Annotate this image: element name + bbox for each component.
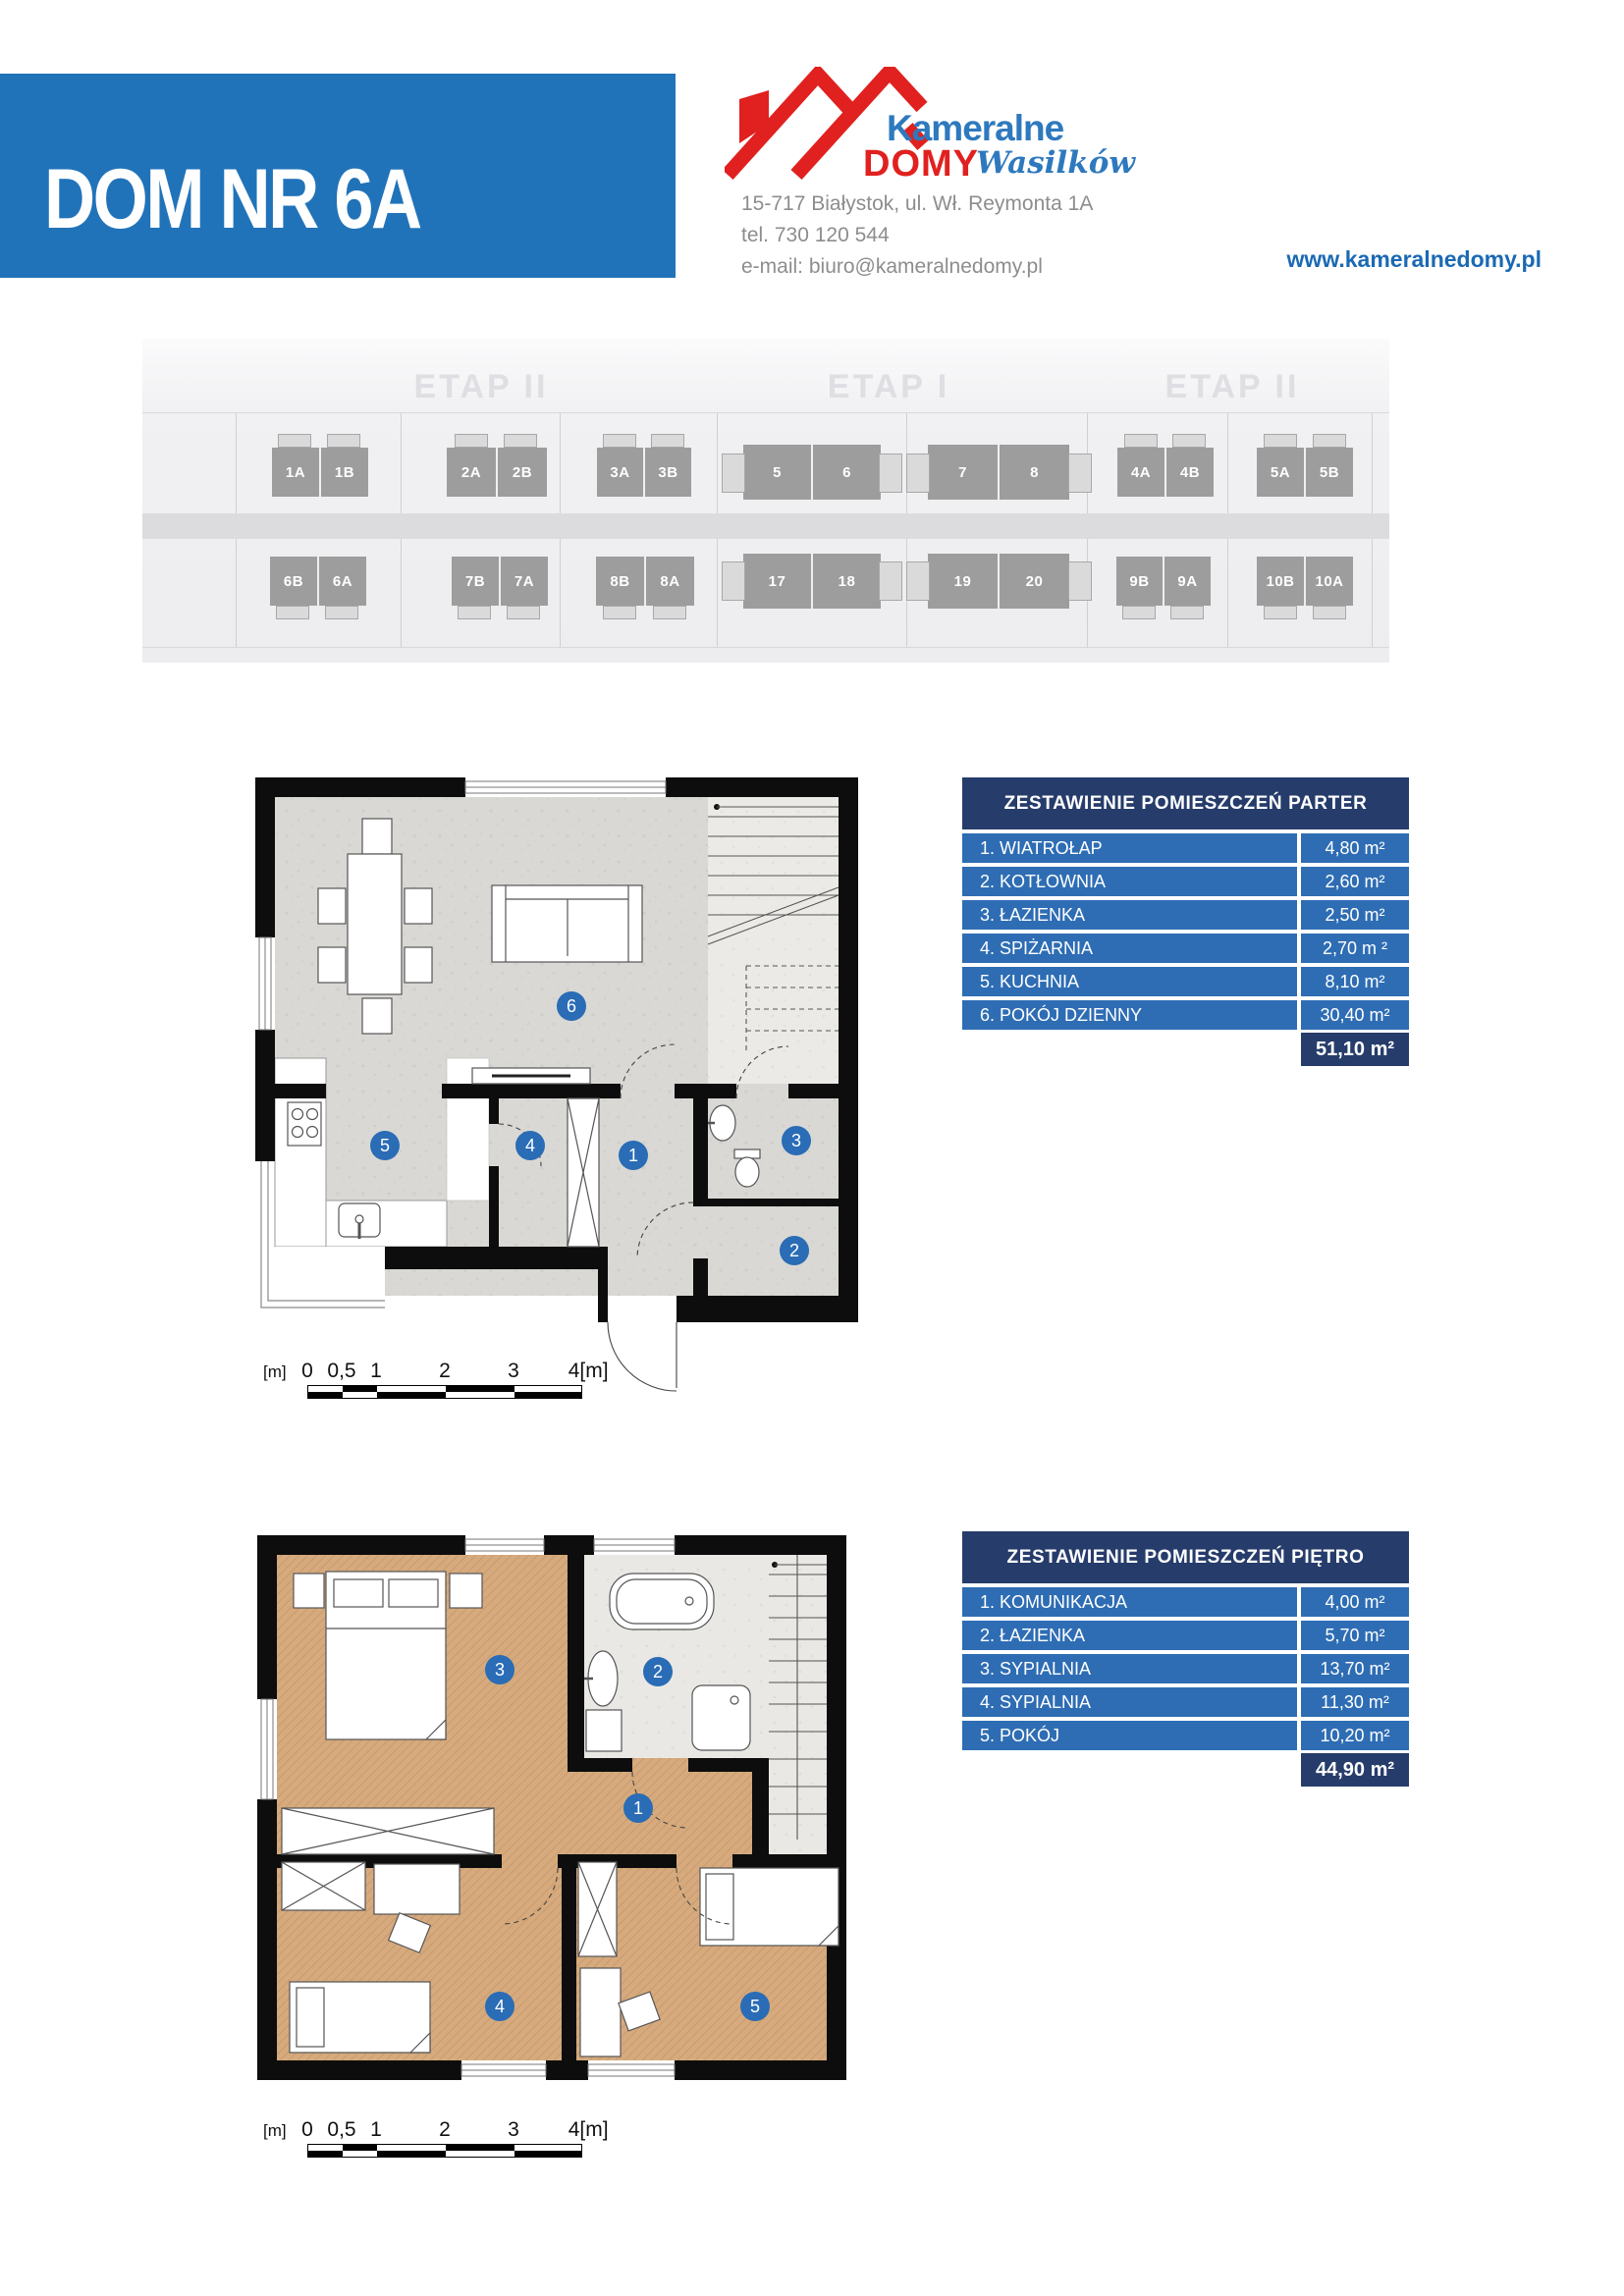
- table-pietro: ZESTAWIENIE POMIESZCZEŃ PIĘTRO 1. KOMUNI…: [962, 1531, 1409, 1787]
- house-pair-7B-7A: 7B 7A: [452, 557, 548, 606]
- contact-address: 15-717 Białystok, ul. Wł. Reymonta 1A: [741, 188, 1093, 220]
- house-pair-3A-3B: 3A 3B: [597, 448, 691, 497]
- scale-bar-parter: [m] 0 0,5 1 2 3 4[m]: [263, 1360, 617, 1409]
- bathtub: [610, 1574, 714, 1629]
- house-pair-1A-1B: 1A 1B: [272, 448, 368, 497]
- table-parter-total: 51,10 m²: [1301, 1033, 1409, 1066]
- table-row: 3. ŁAZIENKA2,50 m²: [962, 900, 1409, 930]
- table-row: 5. KUCHNIA8,10 m²: [962, 967, 1409, 996]
- table-parter: ZESTAWIENIE POMIESZCZEŃ PARTER 1. WIATRO…: [962, 777, 1409, 1066]
- stage-label-etap2-right: ETAP II: [1165, 368, 1300, 406]
- shower: [692, 1685, 750, 1750]
- wardrobe: [568, 1098, 599, 1247]
- house-pair-2A-2B: 2A 2B: [447, 448, 547, 497]
- contact-phone: tel. 730 120 544: [741, 220, 1093, 251]
- floor-plan-pietro: 1 2 3 4 5: [257, 1535, 846, 2085]
- house-pair-8B-8A: 8B 8A: [596, 557, 694, 606]
- table-parter-title: ZESTAWIENIE POMIESZCZEŃ PARTER: [962, 777, 1409, 829]
- bed-room5: [700, 1868, 839, 1946]
- svg-text:2: 2: [789, 1241, 799, 1260]
- logo-brand-bottom: DOMY: [863, 143, 979, 186]
- svg-text:6: 6: [567, 996, 576, 1016]
- table-row: 1. KOMUNIKACJA4,00 m²: [962, 1587, 1409, 1617]
- svg-text:1: 1: [628, 1146, 638, 1165]
- house-pair-19-20: 19 20: [928, 554, 1069, 609]
- contact-email: e-mail: biuro@kameralnedomy.pl: [741, 251, 1093, 283]
- website-link[interactable]: www.kameralnedomy.pl: [1257, 246, 1542, 273]
- svg-text:1: 1: [633, 1798, 643, 1818]
- bed-room4: [290, 1982, 430, 2053]
- svg-text:3: 3: [791, 1131, 801, 1150]
- stage-label-etap1: ETAP I: [828, 368, 949, 406]
- table-row: 2. KOTŁOWNIA2,60 m²: [962, 867, 1409, 896]
- house-pair-10B-10A: 10B 10A: [1257, 557, 1353, 606]
- floor-plan-parter: 1 2 3 4 5 6: [255, 777, 858, 1396]
- kitchen-sink: [339, 1203, 380, 1239]
- table-row: 1. WIATROŁAP4,80 m²: [962, 833, 1409, 863]
- scale-bar-pietro: [m] 0 0,5 1 2 3 4[m]: [263, 2118, 617, 2167]
- svg-text:5: 5: [750, 1997, 760, 2016]
- svg-text:4: 4: [525, 1136, 535, 1155]
- desk-room4: [374, 1864, 460, 1914]
- stage-label-etap2-left: ETAP II: [414, 368, 549, 406]
- site-plan: ETAP II ETAP I ETAP II 1A 1B 2A 2B: [142, 339, 1389, 663]
- table-row: 4. SYPIALNIA11,30 m²: [962, 1687, 1409, 1717]
- logo-brand-script: Wasilków: [976, 145, 1135, 181]
- house-pair-17-18: 17 18: [743, 554, 881, 609]
- table-row: 3. SYPIALNIA13,70 m²: [962, 1654, 1409, 1683]
- desk-room5: [580, 1968, 621, 2056]
- brochure-page: DOM NR 6A Kameralne DOMY Wasilków 15-717…: [0, 0, 1624, 2296]
- table-pietro-title: ZESTAWIENIE POMIESZCZEŃ PIĘTRO: [962, 1531, 1409, 1583]
- site-plan-row1: 1A 1B 2A 2B 3A 3B 5 6: [142, 412, 1389, 514]
- table-row: 2. ŁAZIENKA5,70 m²: [962, 1621, 1409, 1650]
- sofa: [492, 885, 642, 962]
- table-row: 5. POKÓJ10,20 m²: [962, 1721, 1409, 1750]
- svg-text:5: 5: [380, 1136, 390, 1155]
- page-title: DOM NR 6A: [44, 151, 420, 248]
- stove: [288, 1102, 321, 1146]
- contact-block: 15-717 Białystok, ul. Wł. Reymonta 1A te…: [741, 188, 1093, 283]
- wardrobe-room5: [578, 1862, 617, 1956]
- house-pair-4A-4B: 4A 4B: [1117, 448, 1214, 497]
- table-pietro-total: 44,90 m²: [1301, 1753, 1409, 1787]
- table-row: 4. SPIŻARNIA2,70 m ²: [962, 934, 1409, 963]
- house-pair-6B-6A: 6B 6A: [270, 557, 366, 606]
- svg-text:2: 2: [653, 1662, 663, 1682]
- house-pair-7-8: 7 8: [928, 445, 1069, 500]
- tv-cabinet: [472, 1068, 590, 1084]
- house-pair-5-6: 5 6: [743, 445, 881, 500]
- svg-text:4: 4: [495, 1997, 505, 2016]
- house-pair-5A-5B: 5A 5B: [1257, 448, 1353, 497]
- house-pair-9B-9A: 9B 9A: [1116, 557, 1211, 606]
- washing-machine: [586, 1710, 622, 1751]
- table-row: 6. POKÓJ DZIENNY30,40 m²: [962, 1000, 1409, 1030]
- wardrobe-room4: [282, 1862, 365, 1910]
- site-plan-road: [142, 513, 1389, 539]
- svg-text:3: 3: [495, 1660, 505, 1680]
- house-title-banner: DOM NR 6A: [0, 74, 676, 278]
- toilet: [734, 1149, 760, 1187]
- site-plan-row2: 6B 6A 7B 7A 8B 8A 17 18: [142, 539, 1389, 648]
- long-wardrobe: [282, 1808, 494, 1854]
